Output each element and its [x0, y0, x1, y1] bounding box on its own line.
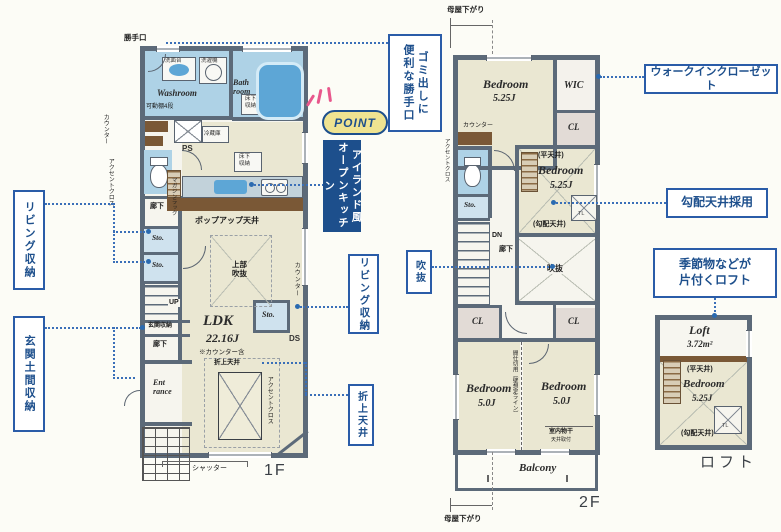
wall-segment	[456, 338, 600, 342]
partition-label: 間仕切用（壁想定ライン）	[511, 350, 518, 448]
washbasin-bowl	[169, 64, 189, 76]
toilet-icon	[150, 164, 168, 188]
dim-line-dashed	[492, 20, 493, 54]
door-arc	[124, 390, 140, 406]
window	[486, 55, 532, 61]
leader-line	[113, 261, 145, 263]
window	[242, 46, 292, 52]
f2-slope-ceiling-label: (勾配天井)	[533, 221, 566, 229]
leader-line	[113, 203, 115, 263]
counter-left-label: カウンター	[101, 114, 108, 158]
wall-segment	[515, 145, 519, 237]
laundry-bracket	[545, 426, 593, 427]
callout-living-storage-right: リビング収納	[348, 254, 379, 334]
window	[746, 330, 752, 358]
wall-segment	[142, 252, 180, 255]
f2-bedroom3-size: 5.0J	[478, 398, 496, 410]
callout-living-storage-left: リビング収納	[13, 190, 45, 290]
bathtub	[256, 62, 304, 120]
f2-counter	[458, 132, 492, 145]
leader-line	[113, 327, 115, 379]
sto2-label: Sto.	[152, 261, 164, 270]
sparkle-icon	[316, 89, 322, 104]
ldk-note: ※カウンター含	[199, 349, 245, 357]
wall-segment	[178, 196, 182, 362]
shutter-label: シャッター	[192, 465, 227, 473]
ldk-label: LDK	[203, 313, 233, 330]
toilet-tank	[464, 157, 481, 166]
shutter-bracket	[162, 461, 248, 462]
loft-bedroom-label: Bedroom	[683, 378, 725, 391]
point-badge: POINT	[322, 110, 388, 135]
shelf-counter	[145, 136, 163, 146]
leader-line	[432, 266, 552, 268]
floor1-label: 1F	[264, 462, 287, 480]
dim-line	[450, 505, 492, 506]
f2-bedroom2-size: 5.25J	[550, 180, 573, 192]
underfloor-storage-washroom-label: 床下 収納	[245, 96, 256, 109]
leader-line	[305, 362, 307, 394]
shutter-bracket	[162, 461, 163, 467]
window	[156, 46, 180, 52]
f2-sto-label: Sto.	[464, 201, 476, 210]
dim-line-dashed	[492, 452, 493, 510]
dining-table	[218, 372, 262, 440]
wall-segment	[499, 305, 502, 338]
leader-line	[600, 76, 644, 78]
floor-plan-page: 洗面台 洗濯機 Washroom 床下 収納 Bath room 可動棚4段 P…	[0, 0, 781, 532]
magazine-rack-label: マガジンラック	[170, 177, 177, 233]
leader-dot	[140, 325, 145, 330]
loft-ladder	[663, 360, 681, 404]
leader-line	[556, 202, 666, 204]
bathroom-label: Bath room	[233, 78, 250, 96]
wall-segment	[287, 300, 290, 333]
callout-entrance-storage: 玄関土間収納	[13, 316, 45, 432]
leader-line	[262, 362, 305, 364]
f2-bedroom2-label: Bedroom	[538, 164, 583, 178]
shelf-counter	[145, 121, 168, 132]
dim-line	[450, 25, 492, 26]
callout-island-kitchen: アイランド風 オープンキッチン	[323, 140, 361, 232]
wall-segment	[140, 360, 192, 364]
balcony-tick	[487, 475, 489, 482]
shutter-bracket	[247, 461, 248, 467]
moya-sagari-bottom-label: 母屋下がり	[444, 514, 482, 523]
wall-segment	[515, 237, 519, 305]
wall-segment	[253, 330, 289, 333]
leader-dot	[712, 313, 717, 318]
wall-segment	[519, 145, 597, 149]
leader-line	[45, 203, 113, 205]
wall-segment	[488, 150, 492, 218]
leader-line	[254, 184, 324, 186]
stairs-down	[456, 222, 490, 306]
wall-segment	[142, 281, 180, 284]
loft-size: 3.72m²	[687, 339, 712, 349]
leader-line	[300, 306, 348, 308]
f2-accent-cloth-label: アクセントクロス	[443, 138, 450, 196]
leader-line	[113, 377, 135, 379]
f2-counter-label: カウンター	[463, 123, 493, 130]
ds-label: DS	[289, 334, 300, 344]
refrigerator-label: 冷蔵庫	[204, 131, 221, 138]
sto1-label: Sto.	[152, 234, 164, 243]
leader-line	[166, 42, 388, 44]
f2-wic-label: WIC	[564, 80, 583, 92]
window	[453, 374, 459, 420]
dim-line	[450, 18, 451, 48]
f2-hallway-label: 廊下	[499, 246, 513, 254]
wall-segment	[456, 146, 492, 150]
loft-hatch-box	[714, 406, 742, 434]
f2-loft-ladder	[521, 152, 538, 192]
leader-dot	[596, 74, 601, 79]
f2-bedroom1-label: Bedroom	[483, 78, 528, 92]
wall-segment	[142, 334, 190, 337]
toilet-icon	[464, 164, 481, 187]
leader-line	[305, 394, 348, 396]
leader-dot	[146, 259, 151, 264]
f2-cl3-label: CL	[568, 316, 580, 326]
leader-dot	[146, 229, 151, 234]
underfloor-storage-kitchen-label: 床下 収納	[239, 154, 250, 167]
washing-machine-drum	[205, 64, 222, 81]
f2-bedroom4-size: 5.0J	[553, 396, 571, 408]
f2-tl-label: TL	[578, 211, 584, 218]
entrance-steps	[142, 427, 190, 481]
window	[302, 228, 308, 286]
window	[302, 132, 308, 164]
toilet-tank	[150, 157, 168, 166]
kitchen-wood-bar	[167, 198, 303, 211]
loft-flat-ceiling-label: (平天井)	[687, 366, 713, 374]
kitchen-sink	[214, 180, 247, 194]
hallway2-label: 廊下	[153, 341, 167, 349]
leader-dot	[295, 304, 300, 309]
floor2-label: 2F	[579, 494, 602, 512]
callout-loft: 季節物などが 片付くロフト	[653, 248, 777, 298]
sto3-label: Sto.	[262, 310, 275, 319]
loft-caption: ロフト	[700, 451, 757, 472]
wall-segment	[456, 194, 490, 197]
popup-ceiling-label: ポップアップ天井	[195, 216, 259, 226]
washbasin-label: 洗面台	[165, 58, 182, 65]
folded-ceiling-plan-label: 折上天井	[214, 359, 240, 367]
wall-segment	[519, 301, 597, 305]
point-badge-label: POINT	[334, 116, 376, 130]
accent-cloth-right-label: アクセントクロス	[265, 376, 272, 432]
hallway1-label: 廊下	[150, 203, 164, 211]
f2-cl1-label: CL	[568, 122, 580, 132]
dim-line	[450, 498, 451, 512]
laundry-label: 室内物干	[549, 429, 573, 436]
laundry-label2: 天井取付	[551, 437, 571, 443]
callout-folded-ceiling: 折上天井	[348, 384, 374, 446]
window	[594, 374, 600, 416]
washing-machine-label: 洗濯機	[201, 58, 218, 65]
leader-dot	[550, 264, 555, 269]
wall-segment	[140, 422, 192, 426]
up-label: UP	[168, 299, 180, 307]
loft-title: Loft	[689, 324, 710, 338]
entrance-storage-label: 玄関収納	[148, 323, 172, 330]
entrance-label: Ent rance	[153, 378, 172, 396]
balcony-label: Balcony	[519, 462, 556, 475]
leader-line	[113, 231, 145, 233]
leader-dot	[249, 182, 254, 187]
f2-bedroom4-label: Bedroom	[541, 380, 586, 394]
partition-line	[521, 342, 522, 450]
callout-backdoor: ゴミ出しに 便利な勝手口	[388, 34, 442, 132]
ps-shaft	[174, 120, 202, 143]
balcony-tick	[566, 475, 568, 482]
callout-wic: ウォークインクローゼット	[644, 64, 778, 94]
callout-void: 吹抜	[406, 250, 432, 294]
movable-shelf-label: 可動棚4段	[146, 104, 173, 111]
loft-bedroom-size: 5.25J	[692, 393, 712, 403]
f2-cl2-label: CL	[472, 316, 484, 326]
leader-line	[45, 327, 141, 329]
dn-label: DN	[492, 232, 502, 240]
backdoor-label: 勝手口	[124, 33, 147, 42]
washroom-label: Washroom	[157, 88, 197, 98]
window	[208, 452, 272, 458]
sparkle-icon	[327, 87, 332, 102]
loft-tl-label: TL	[722, 423, 728, 430]
callout-sloped-ceiling: 勾配天井採用	[666, 188, 768, 218]
wall-segment	[519, 233, 597, 237]
counter-right-label: カウンター	[292, 262, 299, 304]
ldk-atrium-label: 上部 吹抜	[231, 260, 248, 278]
ldk-size: 22.16J	[206, 332, 239, 346]
wall-segment	[553, 305, 556, 338]
moya-sagari-top-label: 母屋下がり	[447, 5, 485, 14]
f2-bedroom1-size: 5.25J	[493, 93, 516, 105]
f2-bedroom3-label: Bedroom	[466, 382, 511, 396]
leader-dot	[551, 200, 556, 205]
wall-segment	[456, 218, 490, 221]
loft-slope-ceiling-label: (勾配天井)	[681, 430, 714, 438]
f2-flat-ceiling-label: (平天井)	[538, 152, 564, 160]
wall-segment	[556, 110, 597, 113]
